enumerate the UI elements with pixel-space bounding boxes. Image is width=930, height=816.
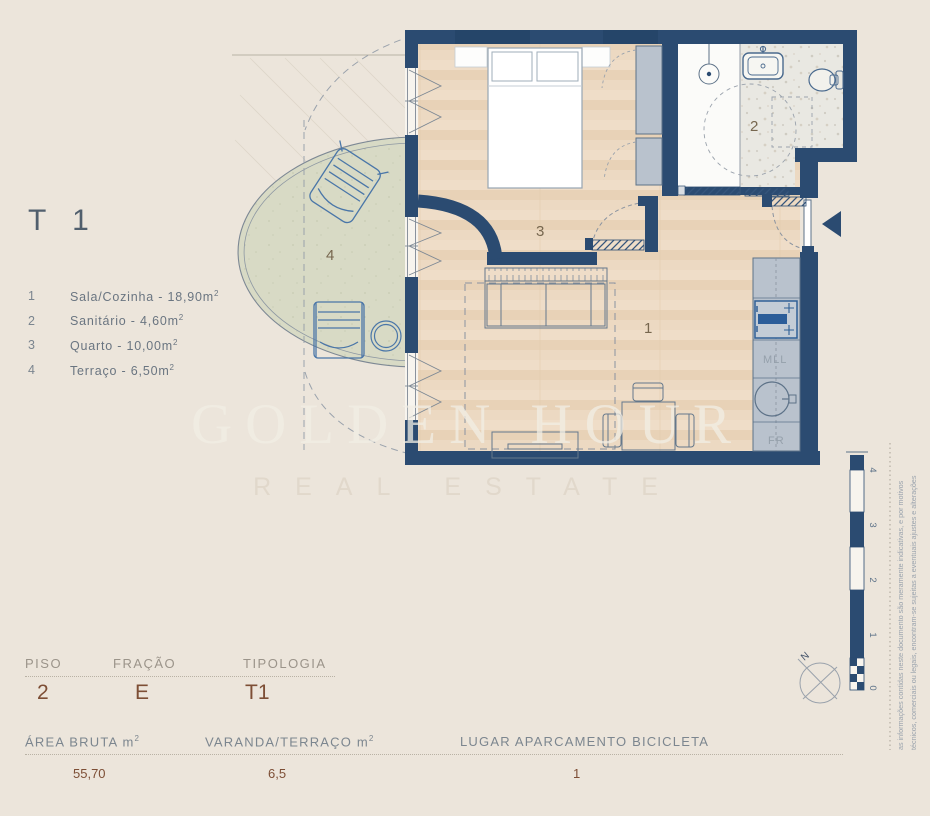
scale-tick-3: 3: [867, 522, 878, 527]
scale-tick-4: 4: [867, 467, 878, 472]
north-label: N: [799, 650, 812, 663]
bedroom-room-number: 3: [536, 223, 544, 240]
nightstand-right: [582, 47, 610, 67]
legend: T 1 1 Sala/Cozinha - 18,90m2 2 Sanitário…: [28, 204, 98, 238]
bathroom-room-number: 2: [750, 118, 758, 135]
entry-arrow-icon: [822, 211, 841, 237]
legend-item-sala: 1 Sala/Cozinha - 18,90m2: [28, 284, 308, 309]
scale-tick-0: 0: [867, 685, 878, 690]
legend-items: 1 Sala/Cozinha - 18,90m2 2 Sanitário - 4…: [28, 284, 308, 382]
cooktop: [755, 301, 797, 338]
toilet: [809, 69, 843, 91]
legend-item-terraco: 4 Terraço - 6,50m2: [28, 358, 308, 383]
terrace: 4: [238, 36, 428, 458]
nightstand-left: [455, 47, 487, 67]
floorplan-drawing: 4: [0, 0, 930, 816]
scale-bar: 4 3 2 1 0: [846, 452, 878, 691]
shower-floor: [678, 44, 740, 194]
double-bed: [488, 48, 582, 188]
scale-tick-1: 1: [867, 632, 878, 637]
disclaimer-line-1: as informações contidas neste documento …: [896, 480, 905, 750]
scale-tick-2: 2: [867, 577, 878, 582]
dishwasher-label: MLL: [763, 354, 787, 366]
living-room-number: 1: [644, 320, 652, 337]
legend-item-sanitario: 2 Sanitário - 4,60m2: [28, 309, 308, 334]
typology-title: T 1: [28, 204, 98, 238]
legend-item-quarto: 3 Quarto - 10,00m2: [28, 333, 308, 358]
fridge-label: FR: [768, 435, 785, 447]
disclaimer-line-2: técnicos, comerciais ou legais, encontra…: [909, 475, 918, 750]
compass: N: [798, 650, 840, 703]
kitchen-counter: MLL FR: [753, 258, 800, 451]
disclaimer: as informações contidas neste documento …: [890, 443, 918, 750]
floorplan-page: 4: [0, 0, 930, 816]
terrace-room-number: 4: [326, 247, 334, 264]
